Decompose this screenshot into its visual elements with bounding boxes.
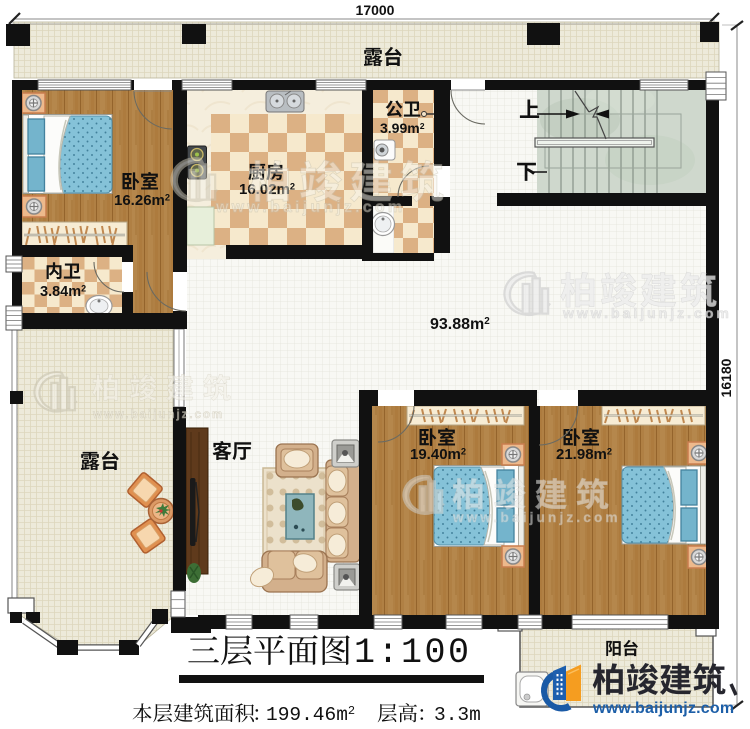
svg-text:3.99m2: 3.99m2 xyxy=(380,120,425,136)
svg-text:16.26m2: 16.26m2 xyxy=(114,192,170,209)
svg-text:199.46m2: 199.46m2 xyxy=(266,704,355,726)
svg-text:93.88m2: 93.88m2 xyxy=(430,316,490,333)
svg-text:www.baijunjz.com: www.baijunjz.com xyxy=(592,700,734,717)
svg-text:16180: 16180 xyxy=(718,358,734,397)
svg-text:www.baijunjz.com: www.baijunjz.com xyxy=(215,199,405,216)
svg-text:19.40m2: 19.40m2 xyxy=(410,446,466,463)
svg-text:21.98m2: 21.98m2 xyxy=(556,446,612,463)
svg-text:3.84m2: 3.84m2 xyxy=(40,284,86,300)
svg-text:1:100: 1:100 xyxy=(354,633,472,673)
svg-text:www.baijunjz.com: www.baijunjz.com xyxy=(92,409,224,421)
svg-text:3.3m: 3.3m xyxy=(434,704,481,726)
svg-text:17000: 17000 xyxy=(356,2,395,18)
svg-text:www.baijunjz.com: www.baijunjz.com xyxy=(562,305,732,321)
svg-text:www.baijunjz.com: www.baijunjz.com xyxy=(452,510,621,525)
